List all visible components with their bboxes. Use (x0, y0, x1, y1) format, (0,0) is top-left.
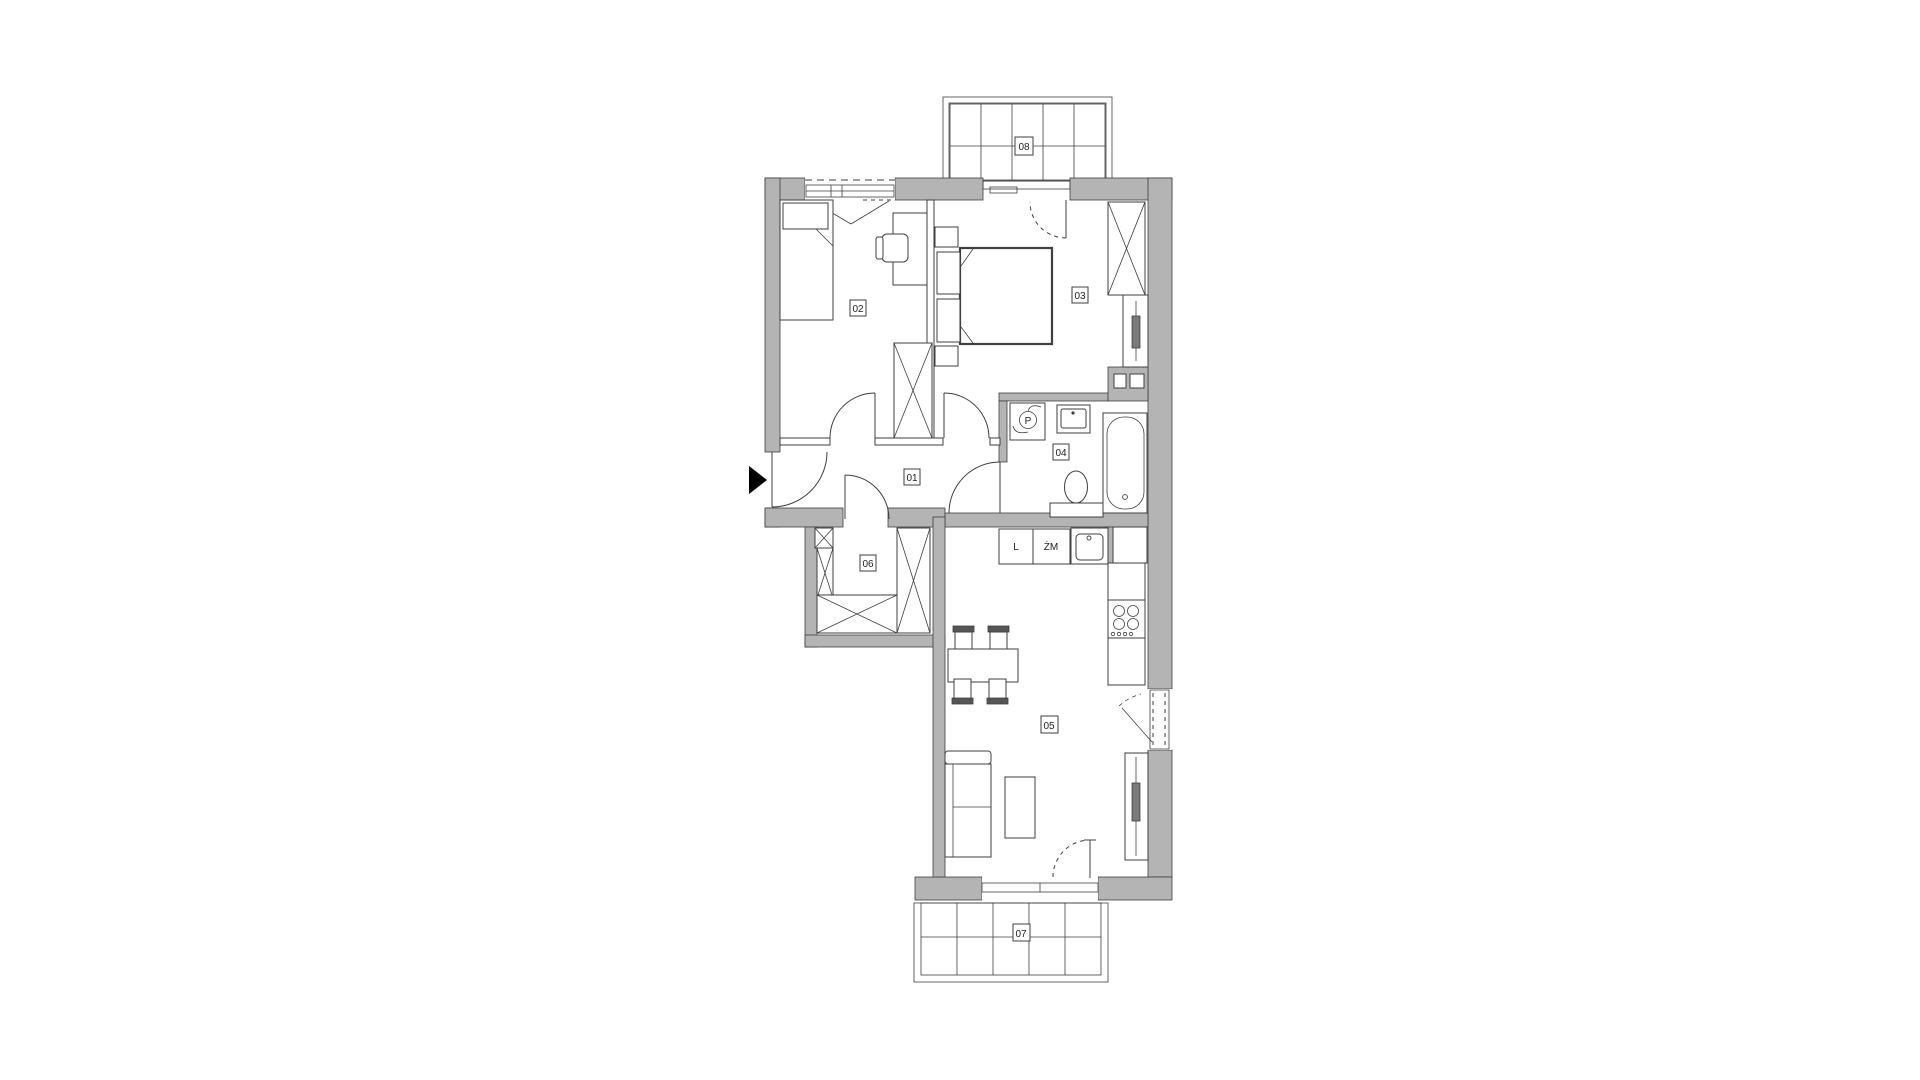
french-door-leaf-right (851, 201, 889, 224)
dishwasher: ŻM (1033, 529, 1070, 564)
desk-chair-back (876, 237, 883, 259)
balcony-07-railing-inner (921, 903, 1101, 975)
balcony-08: 08 (943, 97, 1112, 181)
wardrobe-room03 (1108, 202, 1145, 295)
bathroom-fixtures: P 04 (1010, 403, 1147, 517)
shaft-box (815, 528, 833, 548)
chair (987, 679, 1008, 704)
room-label-06: 06 (860, 555, 876, 571)
nightstand-top (935, 227, 958, 247)
wall-right-upper (1148, 178, 1172, 689)
room03-furniture: 03 (935, 202, 1148, 367)
door-bathroom (949, 462, 1000, 513)
balcony-07: 07 (914, 903, 1108, 982)
svg-text:07: 07 (1015, 929, 1027, 940)
room-label-04: 04 (1053, 444, 1069, 460)
wall-hall-top-3 (990, 438, 1000, 445)
kitchen-sink (1071, 528, 1108, 564)
chair (952, 679, 973, 704)
wardrobe-room02 (894, 343, 932, 438)
door-room06 (845, 475, 889, 519)
washing-machine: P (1010, 403, 1045, 440)
wall-under-bathroom (945, 513, 1148, 527)
living-balcony-door (982, 840, 1098, 900)
dining-table (948, 649, 1018, 682)
wall-hall-bottom-left (765, 508, 843, 527)
bed-pillow-2 (937, 299, 960, 342)
svg-text:01: 01 (906, 473, 918, 484)
room-label-08: 08 (1015, 137, 1033, 155)
vent-shaft-1 (1114, 374, 1126, 388)
room-label-07: 07 (1013, 924, 1030, 941)
counter-corner (1113, 527, 1147, 563)
wall-bathroom-left (999, 401, 1007, 462)
floor-plan-drawing: 08 (0, 0, 1920, 1080)
floor-plan-page: 08 (0, 0, 1920, 1080)
balcony-07-floor-grid (921, 903, 1101, 975)
room-label-02: 02 (850, 300, 866, 316)
svg-text:03: 03 (1074, 291, 1086, 302)
living-furniture: 05 (945, 716, 1148, 860)
vent-shaft-2 (1130, 374, 1144, 388)
coffee-table (1005, 777, 1035, 838)
svg-text:05: 05 (1043, 721, 1055, 732)
nightstand-bottom (935, 346, 958, 366)
entrance-door (772, 452, 827, 507)
wall-living-left (933, 517, 945, 877)
wall-hall-top-2 (875, 438, 943, 445)
door-room02 (830, 393, 875, 438)
room-label-03: 03 (1072, 287, 1088, 303)
room06-furniture: 06 (815, 528, 930, 633)
room-label-01: 01 (904, 469, 920, 485)
closet-right (897, 528, 930, 633)
closet-bottom (817, 595, 897, 633)
living-right-window (1119, 689, 1172, 750)
door-swing (1030, 202, 1066, 238)
bathtub (1103, 413, 1147, 513)
window-swing (1119, 694, 1141, 706)
svg-text:04: 04 (1055, 448, 1067, 459)
sofa (945, 751, 991, 857)
radiator-room03 (1123, 295, 1148, 367)
bathroom-sink (1057, 405, 1090, 433)
double-bed (960, 248, 1052, 344)
wall-bottom-left (915, 877, 982, 900)
svg-text:02: 02 (852, 304, 864, 315)
balcony-07-railing-outer (914, 903, 1108, 982)
wall-top-mid (895, 178, 983, 200)
door-swing (1053, 840, 1090, 877)
bed-pillow-1 (937, 252, 960, 294)
closet-left (817, 548, 833, 598)
cooktop (1108, 600, 1145, 638)
radiator-living (1125, 753, 1148, 860)
wall-bottom-right (1098, 877, 1172, 900)
toilet (1050, 471, 1103, 517)
dining-set (948, 626, 1018, 704)
door-swing (772, 452, 827, 507)
wall-left-upper (765, 178, 780, 452)
fridge-label: L (1013, 542, 1019, 553)
wall-room06-bottom (805, 635, 945, 647)
room02-furniture: 02 (780, 200, 932, 438)
chair (988, 626, 1009, 652)
wall-right-lower (1148, 750, 1172, 877)
entrance-arrow-icon (749, 466, 767, 494)
fridge: L (999, 529, 1033, 564)
room-label-05: 05 (1041, 716, 1058, 733)
dishwasher-label: ŻM (1044, 540, 1058, 553)
desk-chair (882, 234, 908, 262)
window-gap (1148, 689, 1172, 750)
svg-text:06: 06 (862, 559, 874, 570)
kitchen: L ŻM (999, 527, 1147, 685)
window-leaf (1122, 708, 1152, 742)
room03-balcony-door (983, 181, 1070, 238)
bed-pillow (783, 203, 828, 229)
chair (953, 626, 974, 652)
door-room03 (944, 393, 989, 438)
svg-text:08: 08 (1018, 142, 1030, 153)
wall-hall-top-1 (780, 438, 830, 445)
wall-bathroom-top (999, 393, 1108, 401)
washer-symbol: P (1025, 416, 1032, 427)
